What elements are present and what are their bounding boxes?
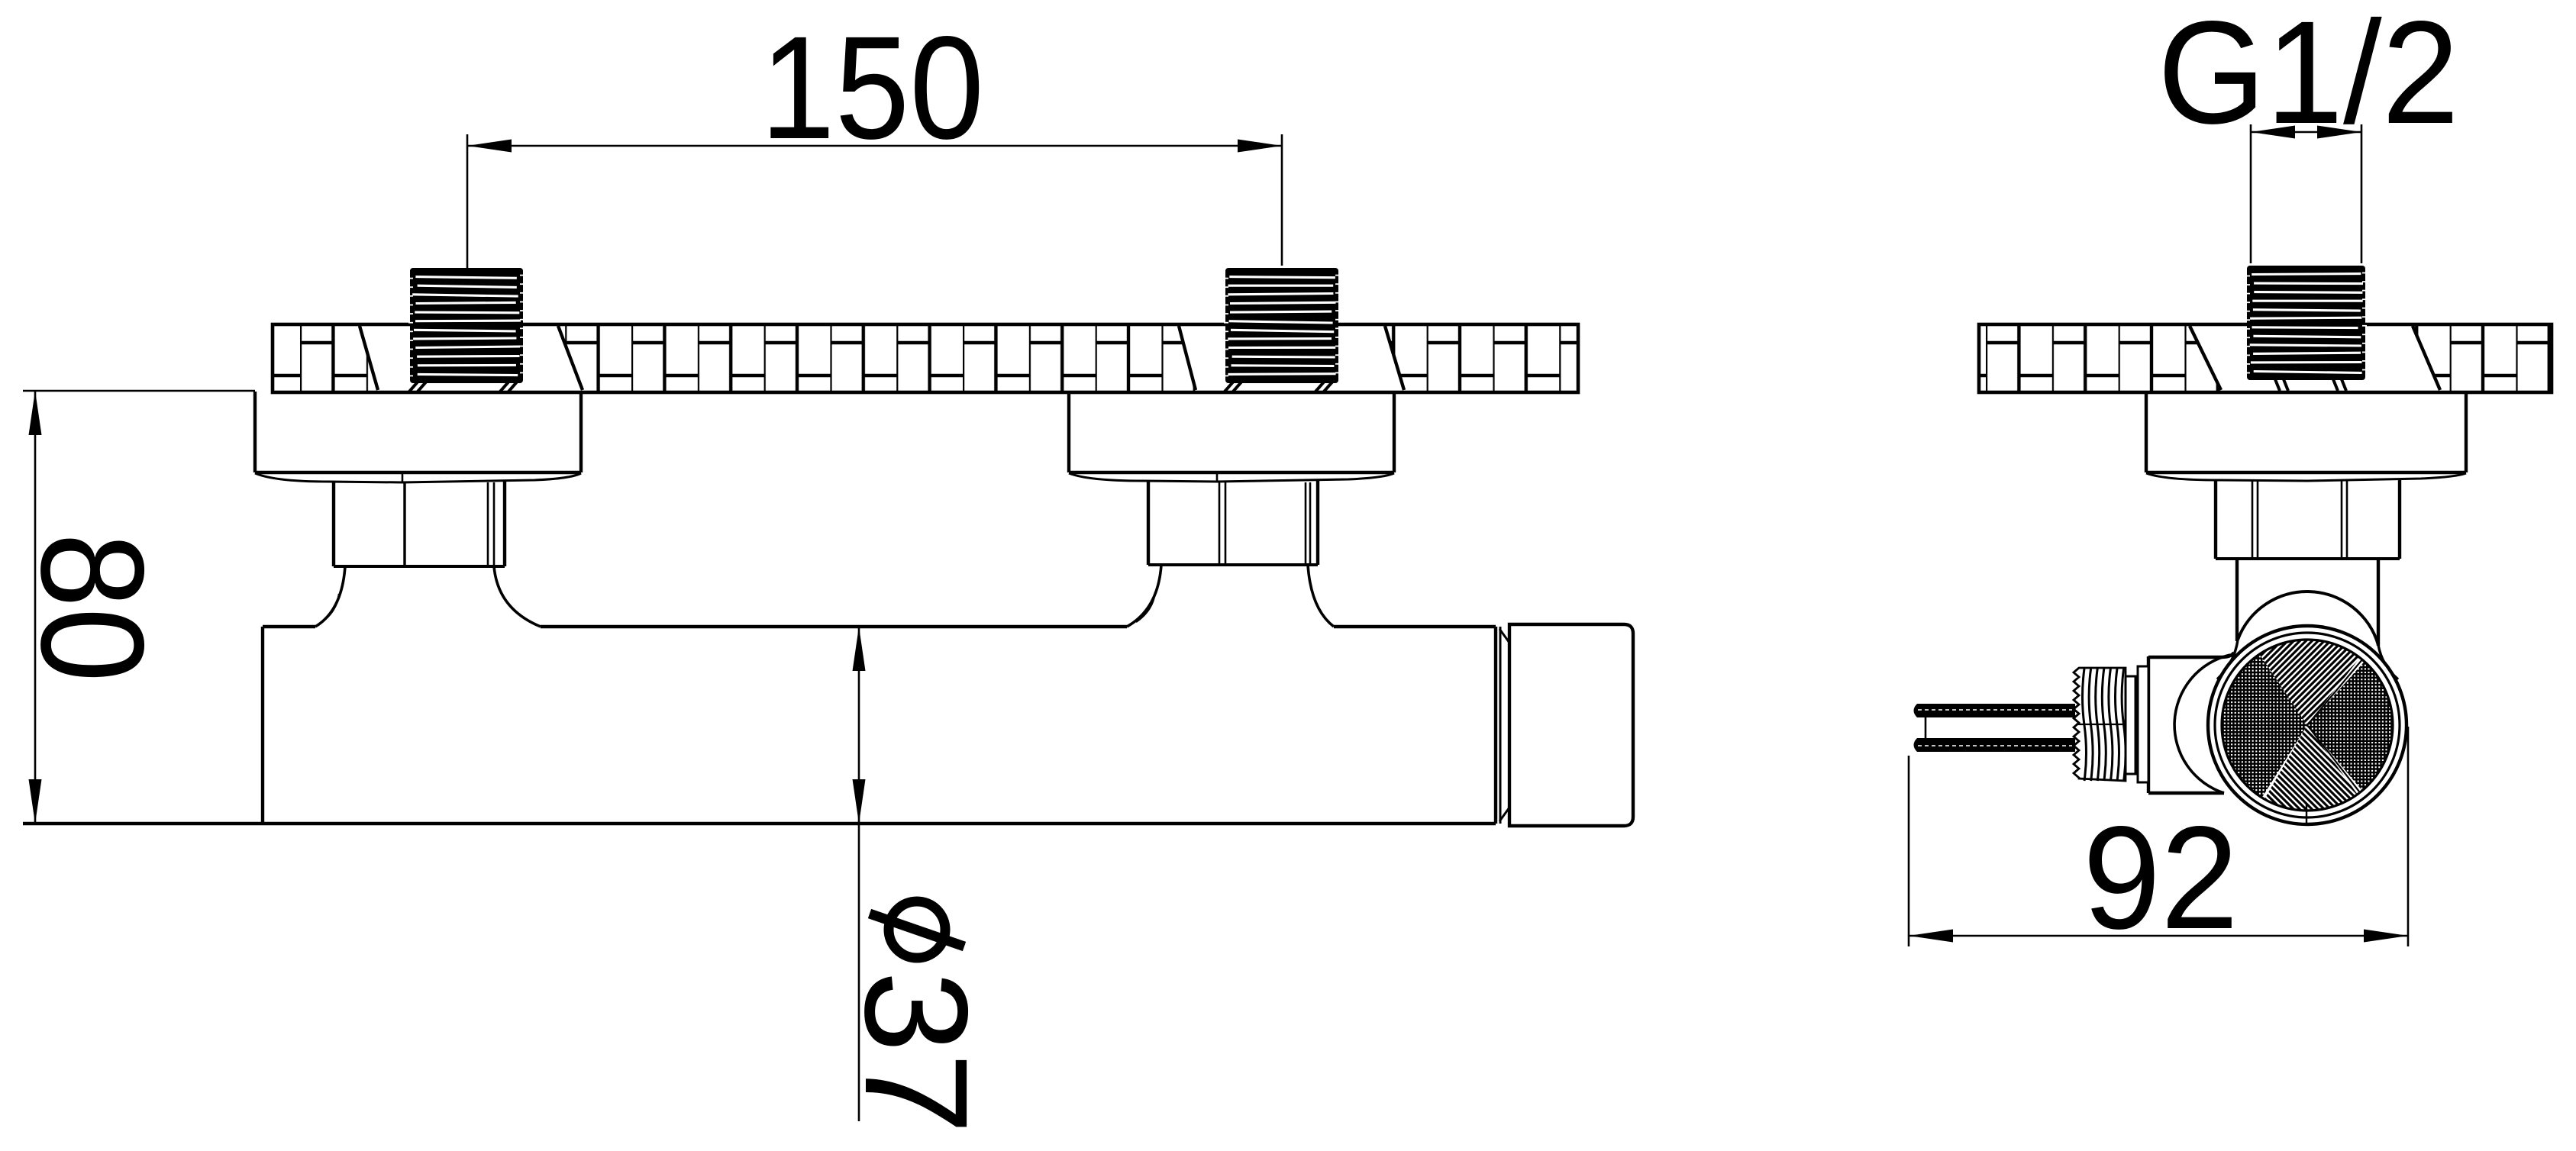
svg-text:37: 37 xyxy=(834,971,999,1134)
svg-text:92: 92 xyxy=(2083,795,2239,959)
svg-text:80: 80 xyxy=(11,533,175,682)
